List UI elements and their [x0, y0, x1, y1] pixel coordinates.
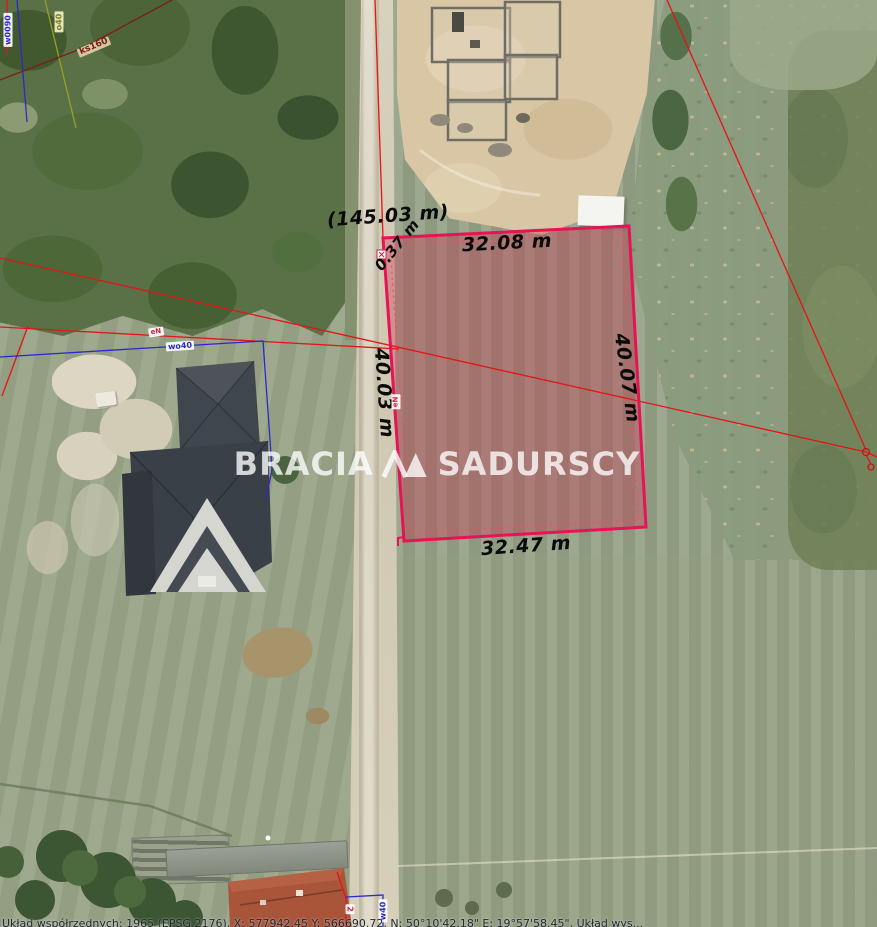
utility-tag-en-parcel: eN — [392, 395, 401, 410]
building-foundations — [432, 2, 560, 140]
bushes-bottom-center — [435, 882, 512, 915]
garden-fence-line — [0, 784, 232, 836]
satellite-parcel-map: (145.03 m) 0.37 m 32.08 m 40.07 m 32.47 … — [0, 0, 877, 927]
parcel-highlight — [383, 226, 646, 541]
watermark-word-right: SADURSCY — [438, 445, 641, 483]
trees-bottom-left — [0, 830, 203, 927]
brand-logo-icon — [381, 450, 431, 478]
utility-tag-w0090: w0090 — [4, 13, 13, 47]
watermark-word-left: BRACIA — [234, 445, 374, 483]
dimension-edge-top: 32.08 m — [461, 230, 552, 257]
coordinate-footer: Układ współrzędnych: 1965 (EPSG 2176), X… — [2, 917, 643, 927]
utility-tag-bottom-red: 2 — [346, 904, 355, 914]
watermark: BRACIA SADURSCY — [234, 445, 641, 483]
utility-pole — [266, 836, 271, 841]
field-fence-line — [398, 848, 877, 866]
sand-track — [420, 150, 540, 195]
utility-tag-o40: o40 — [55, 12, 64, 33]
utility-line-brown — [0, 0, 172, 80]
